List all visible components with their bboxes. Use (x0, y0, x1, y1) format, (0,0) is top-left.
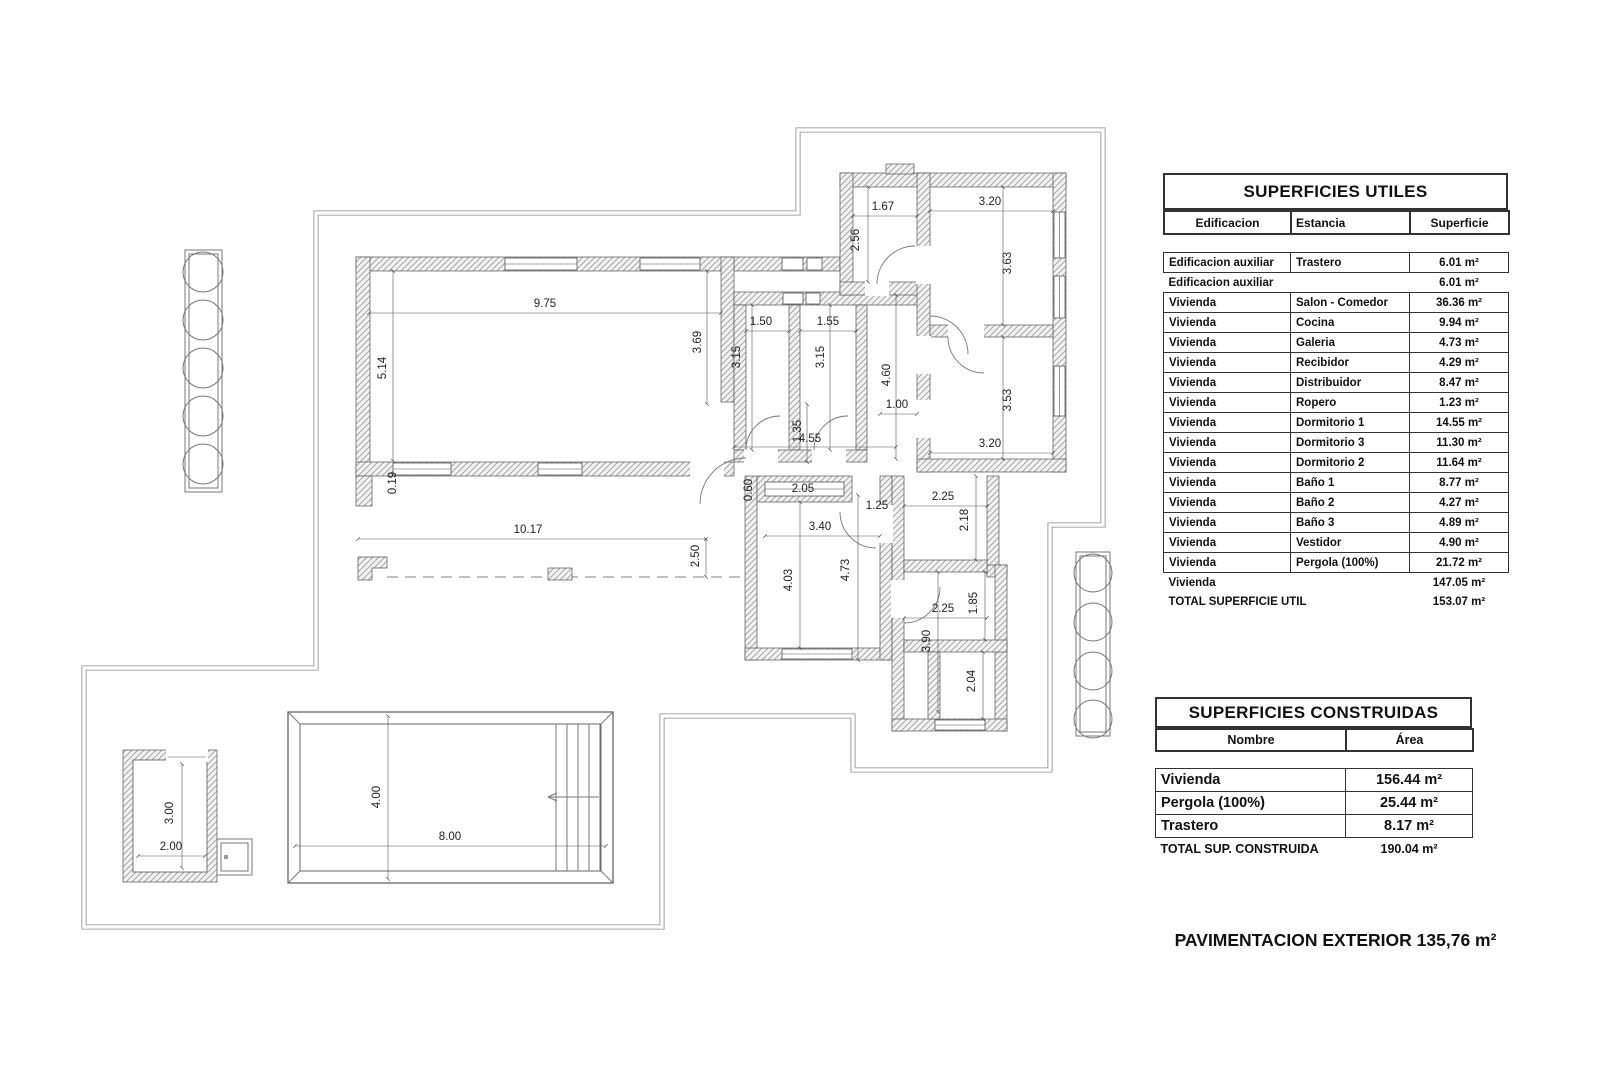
table-title: SUPERFICIES UTILES (1163, 173, 1508, 210)
table-row: ViviendaCocina9.94 m² (1164, 313, 1509, 333)
table-cell: Trastero (1291, 253, 1410, 273)
table-cell: 21.72 m² (1410, 553, 1509, 573)
table-cell: Dormitorio 3 (1291, 433, 1410, 453)
table-cell: Pergola (100%) (1156, 792, 1346, 815)
table-cell: Vivienda (1164, 393, 1291, 413)
table-row: ViviendaSalon - Comedor36.36 m² (1164, 293, 1509, 313)
dimension-label: 3.15 (731, 346, 743, 368)
table-row: ViviendaGaleria4.73 m² (1164, 333, 1509, 353)
table-cell: Dormitorio 2 (1291, 453, 1410, 473)
dimension-label: 5.14 (377, 356, 389, 379)
table-cell: 1.23 m² (1410, 393, 1509, 413)
table-cell: 8.47 m² (1410, 373, 1509, 393)
dimension-label: 1.50 (750, 316, 772, 328)
table-cell: Vivienda (1164, 553, 1291, 573)
dimension-label: 2.05 (792, 483, 814, 495)
table-header-row: Nombre Área (1156, 729, 1473, 751)
dimension-label: 2.25 (932, 491, 954, 503)
table-row: Pergola (100%)25.44 m² (1156, 792, 1473, 815)
dimension-label: 1.25 (866, 500, 888, 512)
door-arc (746, 416, 780, 450)
planter-left (183, 250, 223, 492)
table-cell: 6.01 m² (1410, 253, 1509, 273)
table-cell: 156.44 m² (1346, 769, 1473, 792)
dimension-label: 2.00 (160, 841, 182, 853)
table-cell: Salon - Comedor (1291, 293, 1410, 313)
table-cell: Vivienda (1164, 413, 1291, 433)
dimension-label: 4.03 (783, 569, 795, 591)
table-cell: 6.01 m² (1410, 273, 1509, 293)
table-cell: 4.89 m² (1410, 513, 1509, 533)
dimension-label: 2.56 (850, 229, 862, 251)
column-header: Nombre (1156, 729, 1346, 751)
total-row: TOTAL SUPERFICIE UTIL 153.07 m² (1164, 592, 1509, 611)
table-row: ViviendaDormitorio 211.64 m² (1164, 453, 1509, 473)
table-cell: Vivienda (1164, 453, 1291, 473)
table-cell: Vivienda (1164, 533, 1291, 553)
pergola-column (358, 557, 387, 580)
table-cell: Vestidor (1291, 533, 1410, 553)
exterior-paving-title: PAVIMENTACION EXTERIOR 135,76 m² (1163, 930, 1508, 951)
table-row: Trastero8.17 m² (1156, 815, 1473, 838)
dimension-label: 9.75 (534, 298, 556, 310)
floor-plan-svg: 9.755.143.691.501.553.153.151.672.563.20… (0, 0, 1130, 1080)
table-row: Vivienda156.44 m² (1156, 769, 1473, 792)
table-cell: Vivienda (1164, 353, 1291, 373)
door-arc (877, 246, 915, 284)
pergola-column (548, 568, 572, 580)
table-cell: Dormitorio 1 (1291, 413, 1410, 433)
dimension-label: 0.60 (743, 479, 755, 501)
table-cell: 25.44 m² (1346, 792, 1473, 815)
table-cell: 8.77 m² (1410, 473, 1509, 493)
table-cell: 14.55 m² (1410, 413, 1509, 433)
table-cell: Trastero (1156, 815, 1346, 838)
dimension-label: 3.20 (979, 438, 1001, 450)
column-header: Edificacion (1164, 211, 1291, 234)
table-row: ViviendaBaño 34.89 m² (1164, 513, 1509, 533)
dimension-label: 3.40 (809, 521, 831, 533)
house-walls (356, 164, 1066, 731)
dimension-label: 0.19 (387, 472, 399, 494)
table-cell: Cocina (1291, 313, 1410, 333)
table-cell: Vivienda (1164, 373, 1291, 393)
table-cell: 4.29 m² (1410, 353, 1509, 373)
table-cell: 9.94 m² (1410, 313, 1509, 333)
column-header: Superficie (1410, 211, 1509, 234)
superficies-utiles-table: SUPERFICIES UTILES Edificacion Estancia … (1163, 173, 1508, 611)
dimension-label: 1.67 (872, 201, 894, 213)
dimension-label: 1.00 (886, 399, 908, 411)
table-cell: Baño 3 (1291, 513, 1410, 533)
table-cell: 11.30 m² (1410, 433, 1509, 453)
planter-right (1074, 552, 1112, 738)
table-cell: Vivienda (1156, 769, 1346, 792)
dimension-label: 1.55 (817, 316, 839, 328)
table-row: ViviendaVestidor4.90 m² (1164, 533, 1509, 553)
dimension-label: 10.17 (514, 524, 543, 536)
column-header: Estancia (1291, 211, 1410, 234)
table-cell: Edificacion auxiliar (1164, 273, 1291, 293)
table-cell: 4.73 m² (1410, 333, 1509, 353)
table-row: ViviendaRecibidor4.29 m² (1164, 353, 1509, 373)
table-row: ViviendaRopero1.23 m² (1164, 393, 1509, 413)
table-cell (1291, 273, 1410, 293)
dimension-label: 4.00 (371, 786, 383, 808)
table-cell: Vivienda (1164, 333, 1291, 353)
dimension-label: 2.18 (959, 509, 971, 531)
superficies-construidas-table: SUPERFICIES CONSTRUIDAS Nombre Área Vivi… (1155, 697, 1472, 860)
table-row: ViviendaPergola (100%)21.72 m² (1164, 553, 1509, 573)
dimension-label: 4.73 (840, 559, 852, 581)
dimension-label: 3.00 (164, 802, 176, 824)
column-header: Área (1346, 729, 1473, 751)
page: 9.755.143.691.501.553.153.151.672.563.20… (0, 0, 1620, 1080)
dimension-label: 3.63 (1002, 252, 1014, 274)
table-cell: Ropero (1291, 393, 1410, 413)
table-row: ViviendaBaño 24.27 m² (1164, 493, 1509, 513)
total-row: TOTAL SUP. CONSTRUIDA 190.04 m² (1156, 838, 1473, 861)
dimension-label: 1.35 (792, 420, 804, 442)
table-cell: Vivienda (1164, 433, 1291, 453)
table-cell: 36.36 m² (1410, 293, 1509, 313)
dimension-label: 3.69 (692, 331, 704, 353)
subtotal-row: Vivienda 147.05 m² (1164, 573, 1509, 593)
table-cell: Baño 1 (1291, 473, 1410, 493)
table-cell: 8.17 m² (1346, 815, 1473, 838)
table-row: ViviendaBaño 18.77 m² (1164, 473, 1509, 493)
table-row: Edificacion auxiliarTrastero6.01 m² (1164, 253, 1509, 273)
table-row: ViviendaDistribuidor8.47 m² (1164, 373, 1509, 393)
table-title: SUPERFICIES CONSTRUIDAS (1155, 697, 1472, 728)
table-cell: Galeria (1291, 333, 1410, 353)
table-row: ViviendaDormitorio 114.55 m² (1164, 413, 1509, 433)
dimension-label: 3.53 (1002, 389, 1014, 411)
table-cell: Pergola (100%) (1291, 553, 1410, 573)
table-cell: Distribuidor (1291, 373, 1410, 393)
dimension-label: 2.04 (966, 669, 978, 692)
table-cell: Vivienda (1164, 313, 1291, 333)
dimension-label: 2.50 (690, 545, 702, 567)
table-cell: Vivienda (1164, 493, 1291, 513)
table-cell: 4.90 m² (1410, 533, 1509, 553)
table-cell: Vivienda (1164, 293, 1291, 313)
table-cell: 4.27 m² (1410, 493, 1509, 513)
table-cell: Baño 2 (1291, 493, 1410, 513)
table-row: ViviendaDormitorio 311.30 m² (1164, 433, 1509, 453)
dimension-label: 3.20 (979, 196, 1001, 208)
dimension-label: 2.25 (932, 603, 954, 615)
pool (288, 712, 613, 883)
dimension-label: 1.85 (968, 592, 980, 614)
dimension-label: 4.60 (881, 364, 893, 386)
table-cell: Edificacion auxiliar (1164, 253, 1291, 273)
table-cell: Vivienda (1164, 473, 1291, 493)
dimension-label: 3.15 (815, 346, 827, 368)
table-cell: Recibidor (1291, 353, 1410, 373)
table-row: Edificacion auxiliar6.01 m² (1164, 273, 1509, 293)
dimension-label: 3.90 (921, 630, 933, 652)
dimension-label: 8.00 (439, 831, 461, 843)
table-cell: Vivienda (1164, 513, 1291, 533)
table-cell: 11.64 m² (1410, 453, 1509, 473)
trastero (123, 749, 252, 882)
table-header-row: Edificacion Estancia Superficie (1164, 211, 1509, 234)
